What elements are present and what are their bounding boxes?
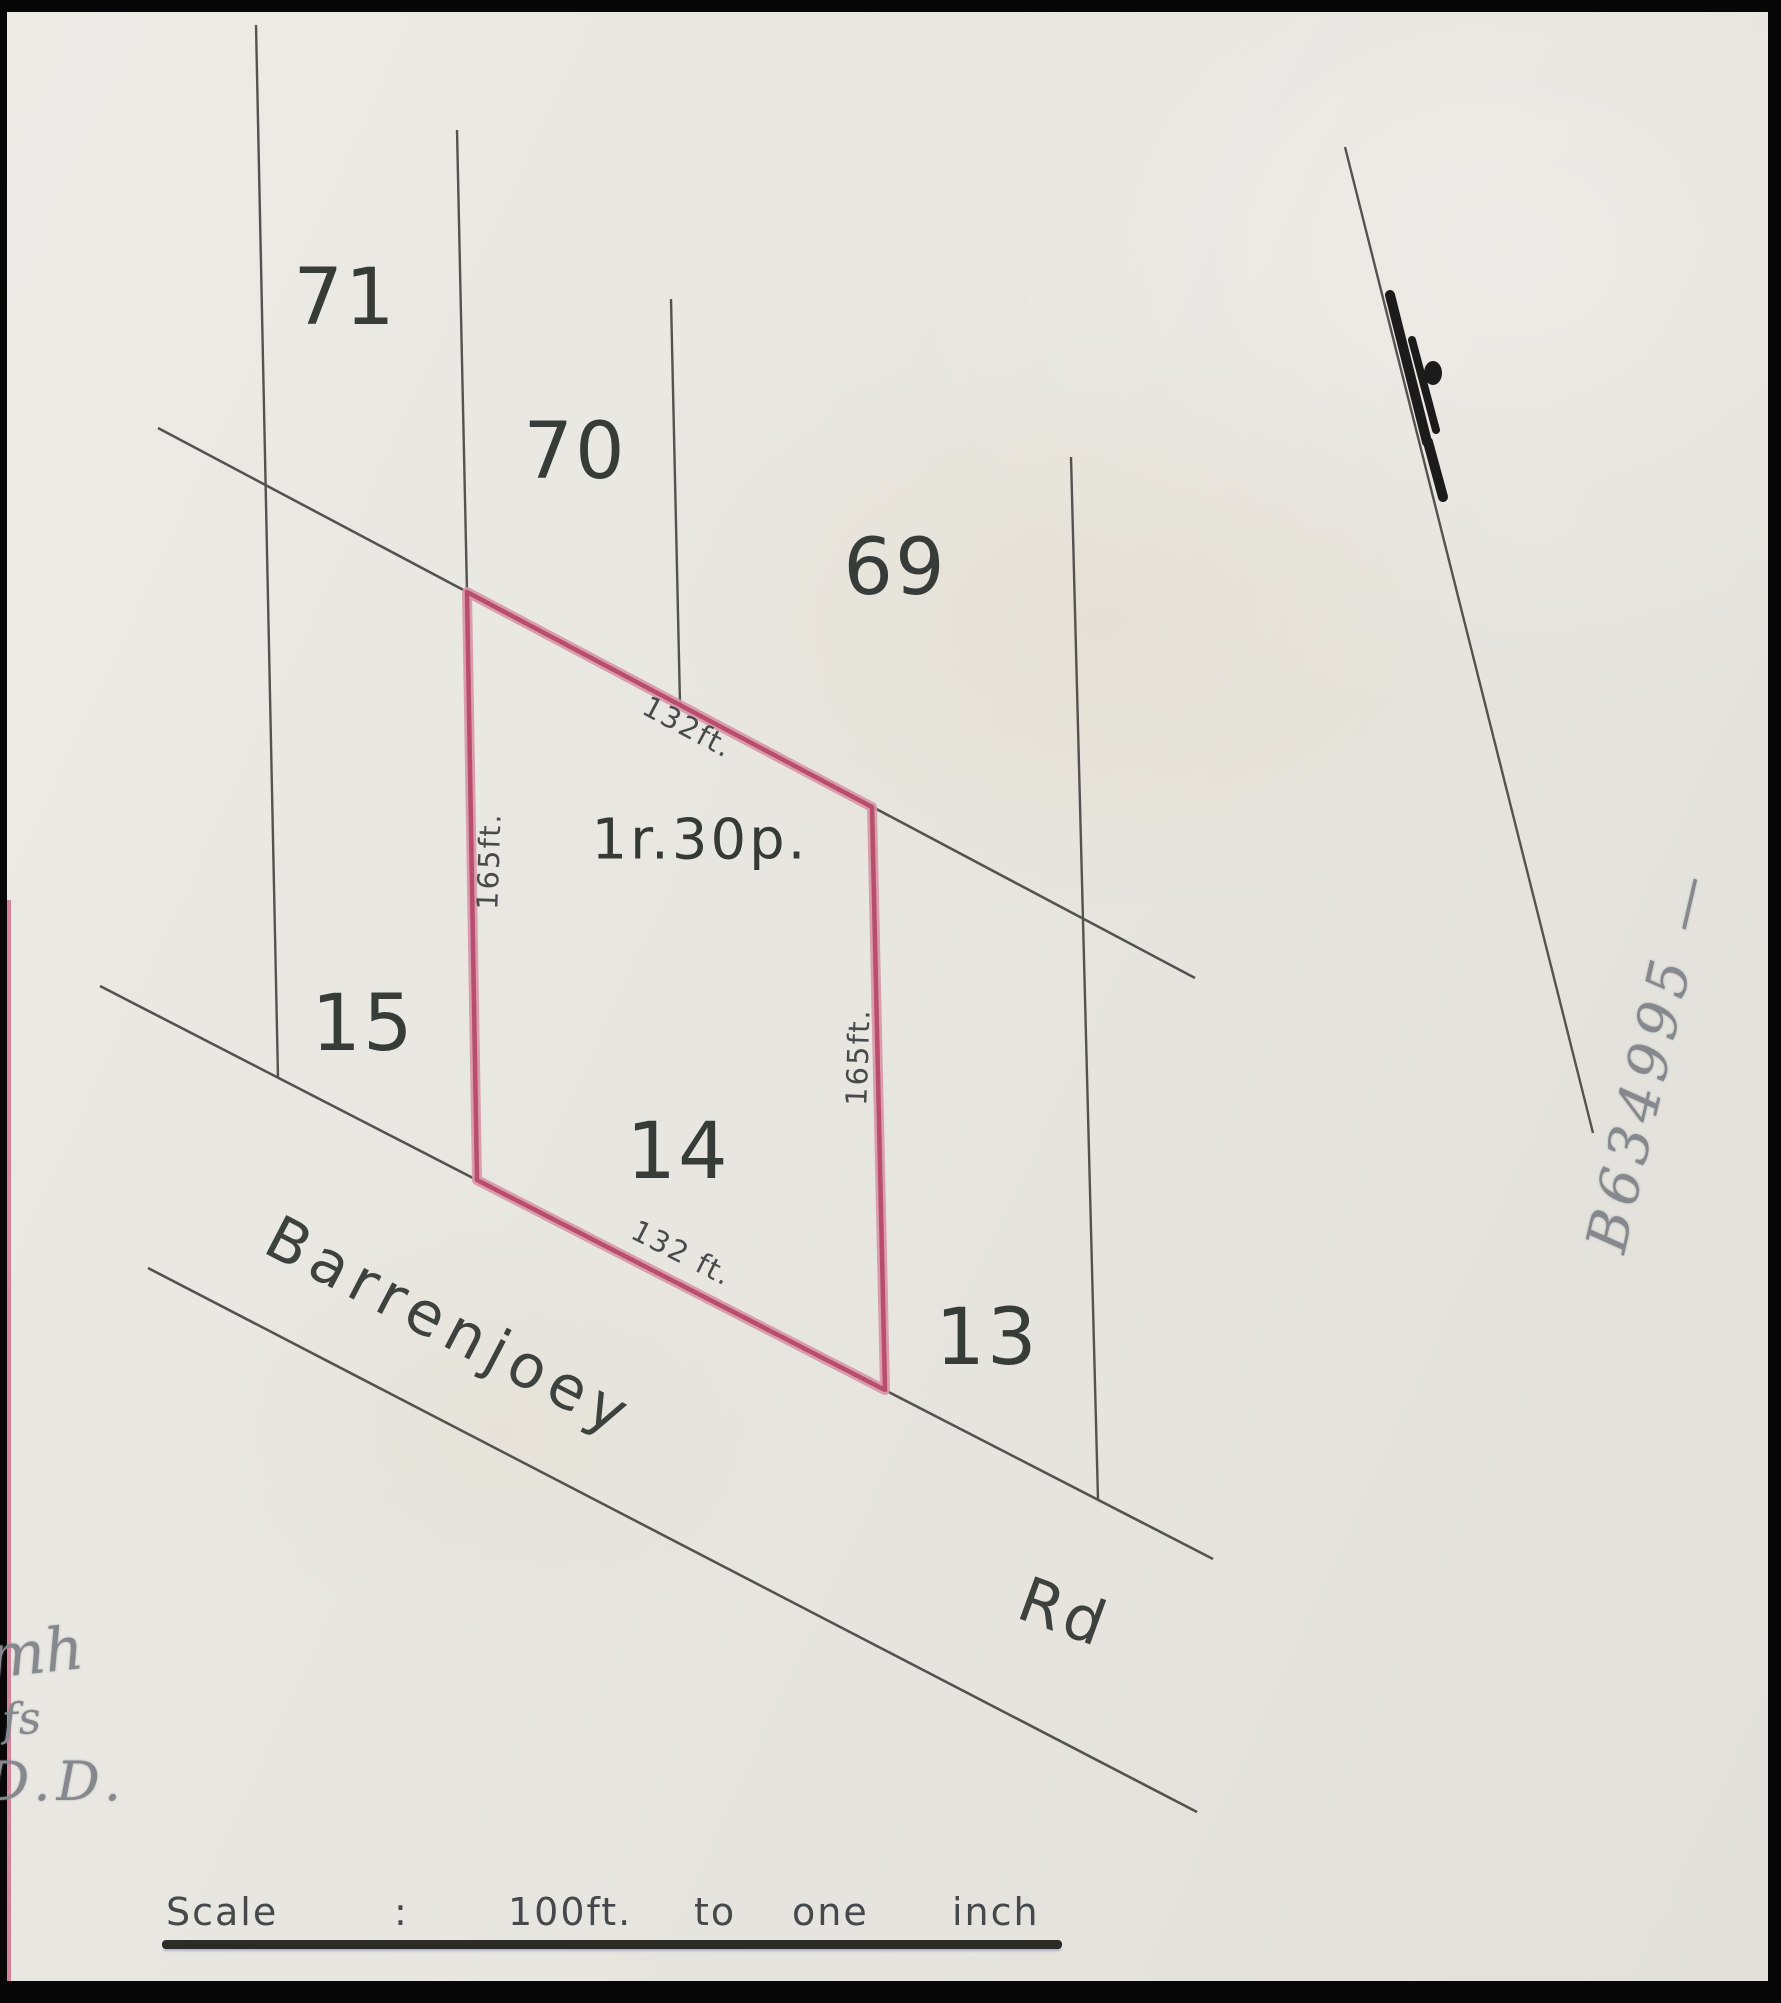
lot-69-label: 69 <box>843 523 946 613</box>
parcel-area-label: 1r.30p. <box>592 808 809 873</box>
lot-divider-71-15 <box>256 25 278 1078</box>
scale-word-inch: inch <box>952 1890 1040 1934</box>
scale-label: Scale <box>166 1890 278 1934</box>
margin-diagonal-line <box>1345 147 1593 1133</box>
lot-13-label: 13 <box>935 1293 1038 1383</box>
scanned-survey-plan-page: { "plan": { "lots": [ {"label": "71"}, {… <box>0 0 1781 2003</box>
lot-71-label: 71 <box>293 253 396 343</box>
scale-value: 100ft. <box>508 1890 632 1934</box>
ink-mark-blob <box>1424 361 1442 385</box>
pencil-corner-mark: fs <box>0 1693 42 1747</box>
lot-15-label: 15 <box>311 979 414 1069</box>
dimension-left: 165ft. <box>470 812 507 911</box>
pencil-corner-mark: D.D. <box>0 1750 127 1813</box>
dimension-right: 165ft. <box>839 1008 876 1107</box>
lot-divider-71-70 <box>457 130 467 592</box>
scale-word-to: to <box>694 1890 736 1934</box>
survey-plan-drawing <box>0 0 1781 2003</box>
lot-14-label: 14 <box>626 1107 729 1197</box>
scale-word-one: one <box>792 1890 869 1934</box>
pencil-corner-mark: mh <box>0 1613 87 1693</box>
scale-underline <box>162 1940 1062 1949</box>
road-lower-boundary <box>148 1268 1197 1812</box>
lot-divider-69-13 <box>1071 457 1098 1500</box>
lot-divider-70-69 <box>671 299 680 704</box>
scale-colon: : <box>394 1890 409 1934</box>
lot-70-label: 70 <box>523 407 626 497</box>
